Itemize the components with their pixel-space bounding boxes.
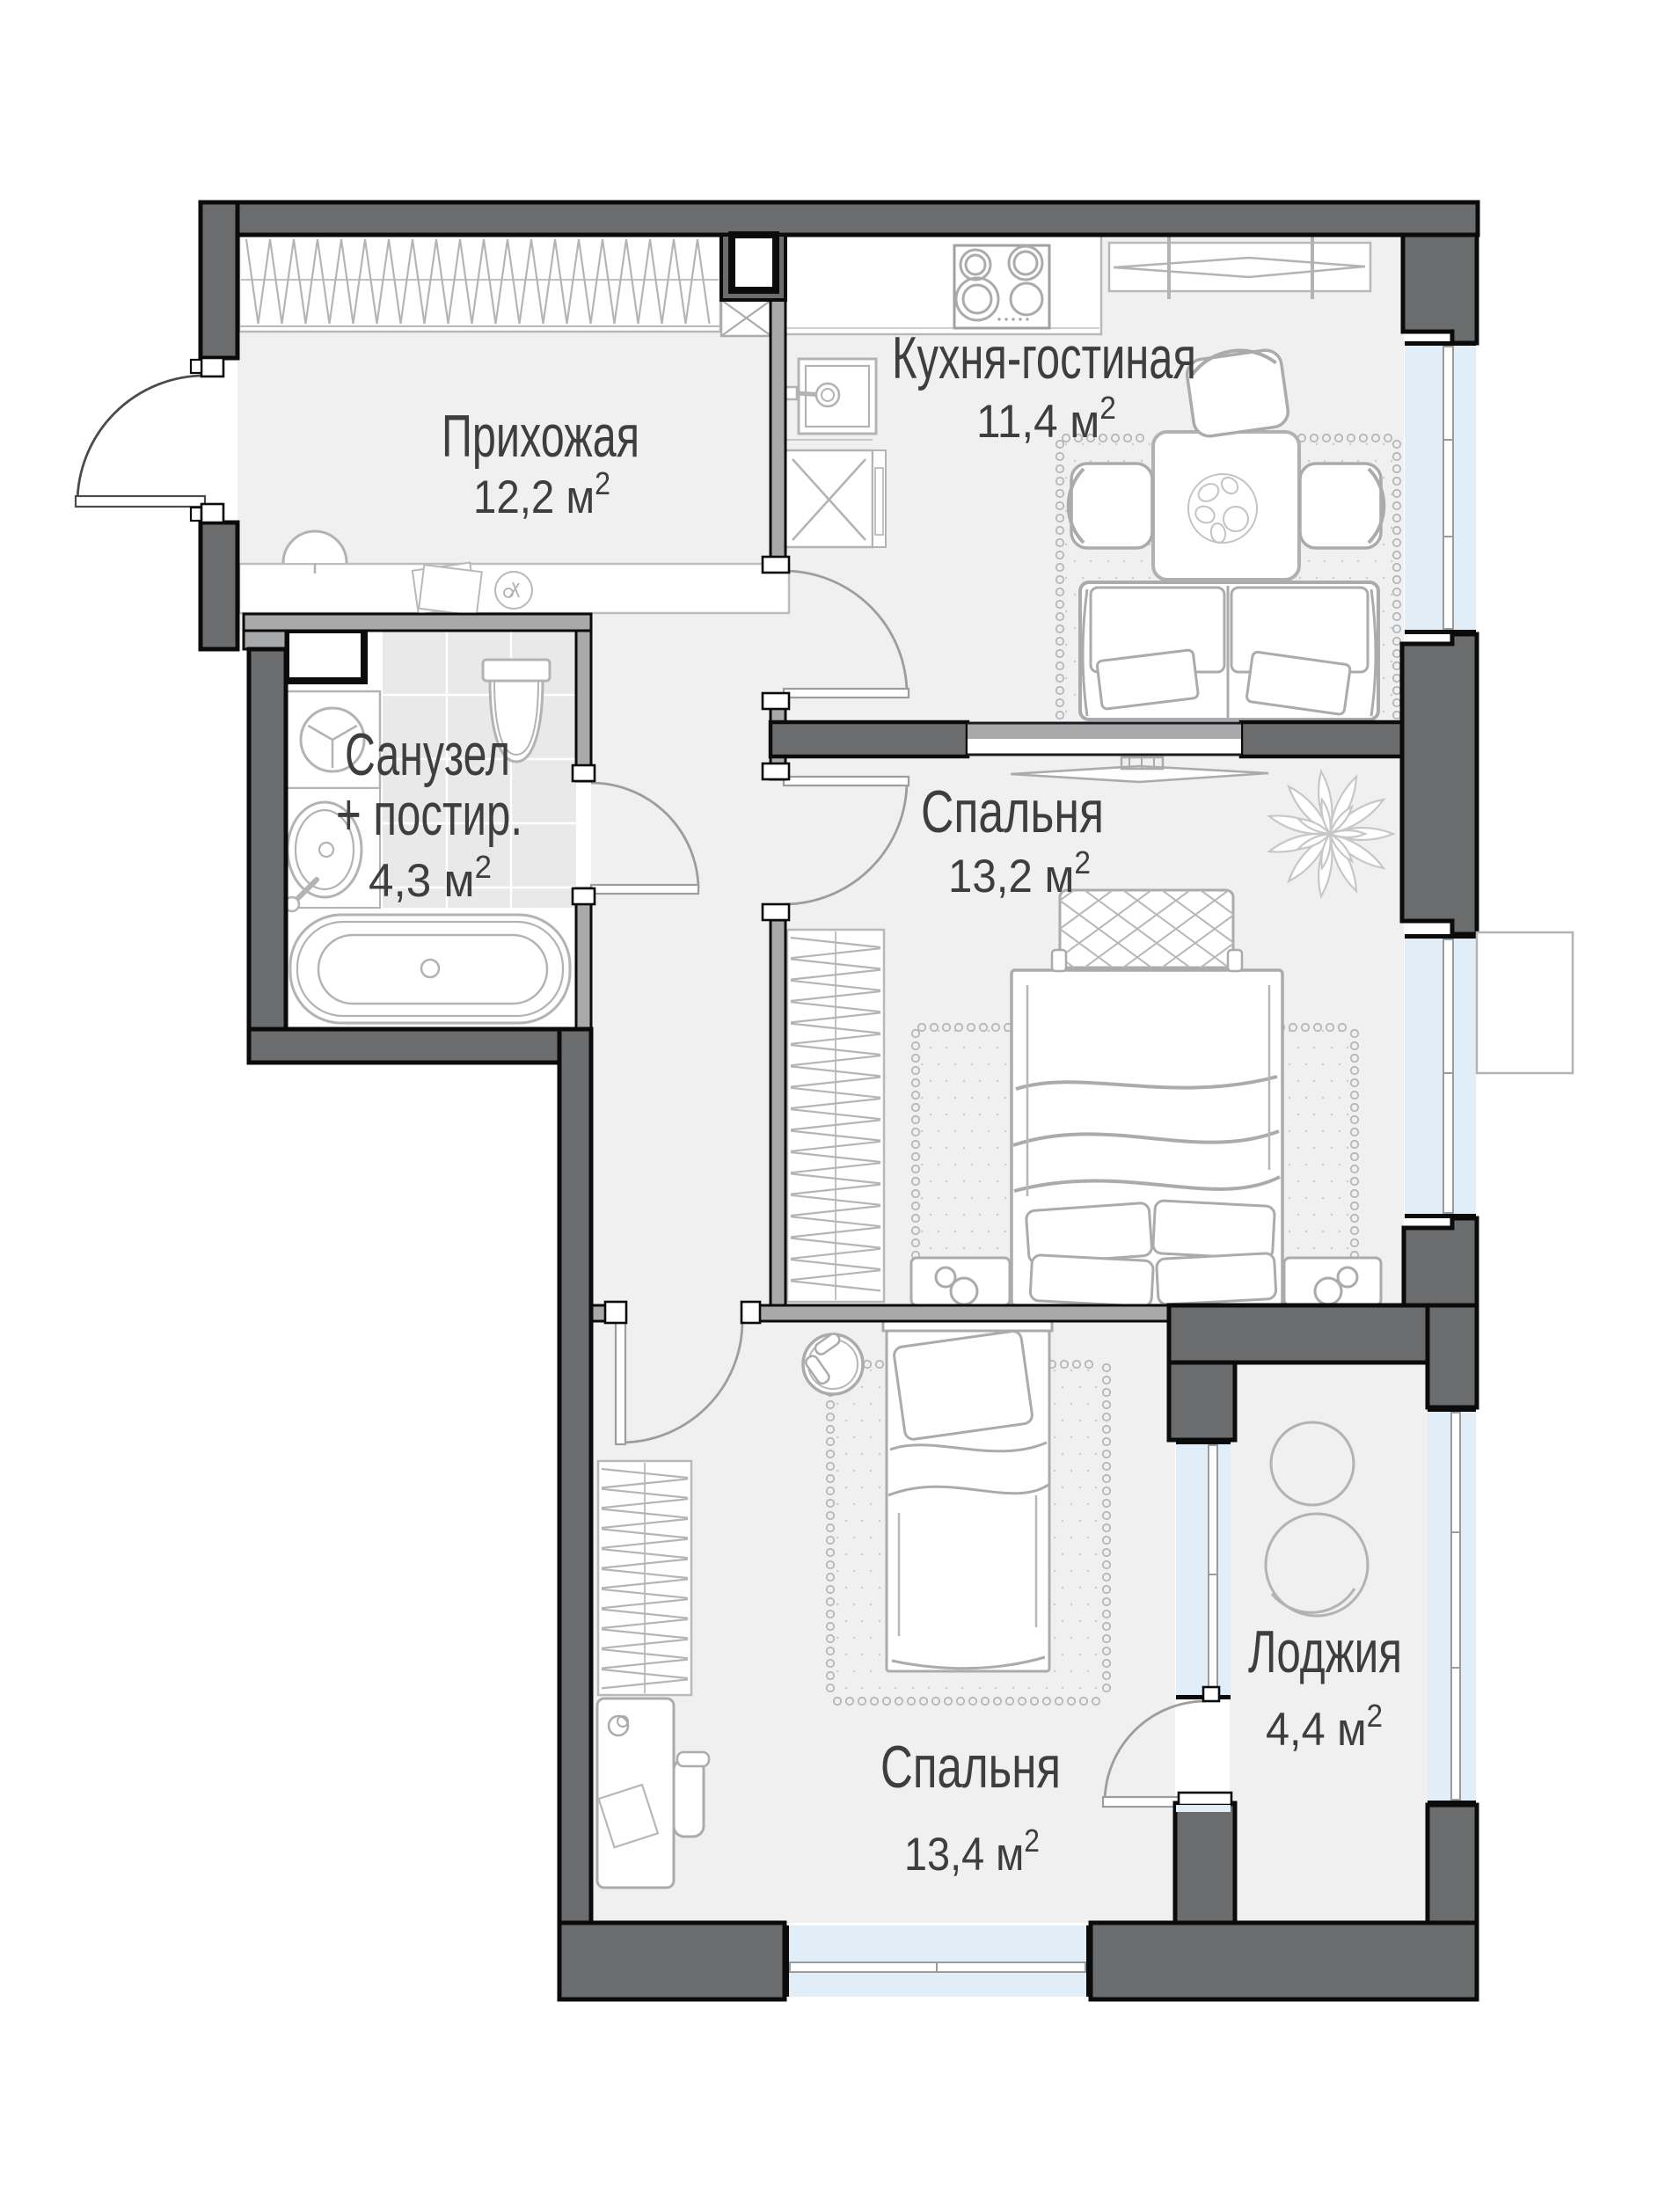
svg-text:+ постир.: + постир. — [336, 781, 522, 848]
svg-text:12,2 м2: 12,2 м2 — [473, 465, 610, 523]
svg-text:13,4 м2: 13,4 м2 — [904, 1823, 1040, 1881]
svg-text:13,2 м2: 13,2 м2 — [948, 844, 1091, 902]
svg-text:Прихожая: Прихожая — [442, 403, 639, 470]
svg-text:4,4 м2: 4,4 м2 — [1266, 1698, 1383, 1756]
svg-text:Лоджия: Лоджия — [1248, 1618, 1402, 1685]
svg-text:Санузел: Санузел — [345, 721, 510, 788]
svg-text:Спальня: Спальня — [880, 1734, 1061, 1801]
svg-text:Спальня: Спальня — [921, 778, 1104, 845]
svg-text:4,3 м2: 4,3 м2 — [369, 849, 492, 907]
svg-text:Кухня-гостиная: Кухня-гостиная — [892, 325, 1196, 391]
svg-text:11,4 м2: 11,4 м2 — [976, 390, 1116, 448]
